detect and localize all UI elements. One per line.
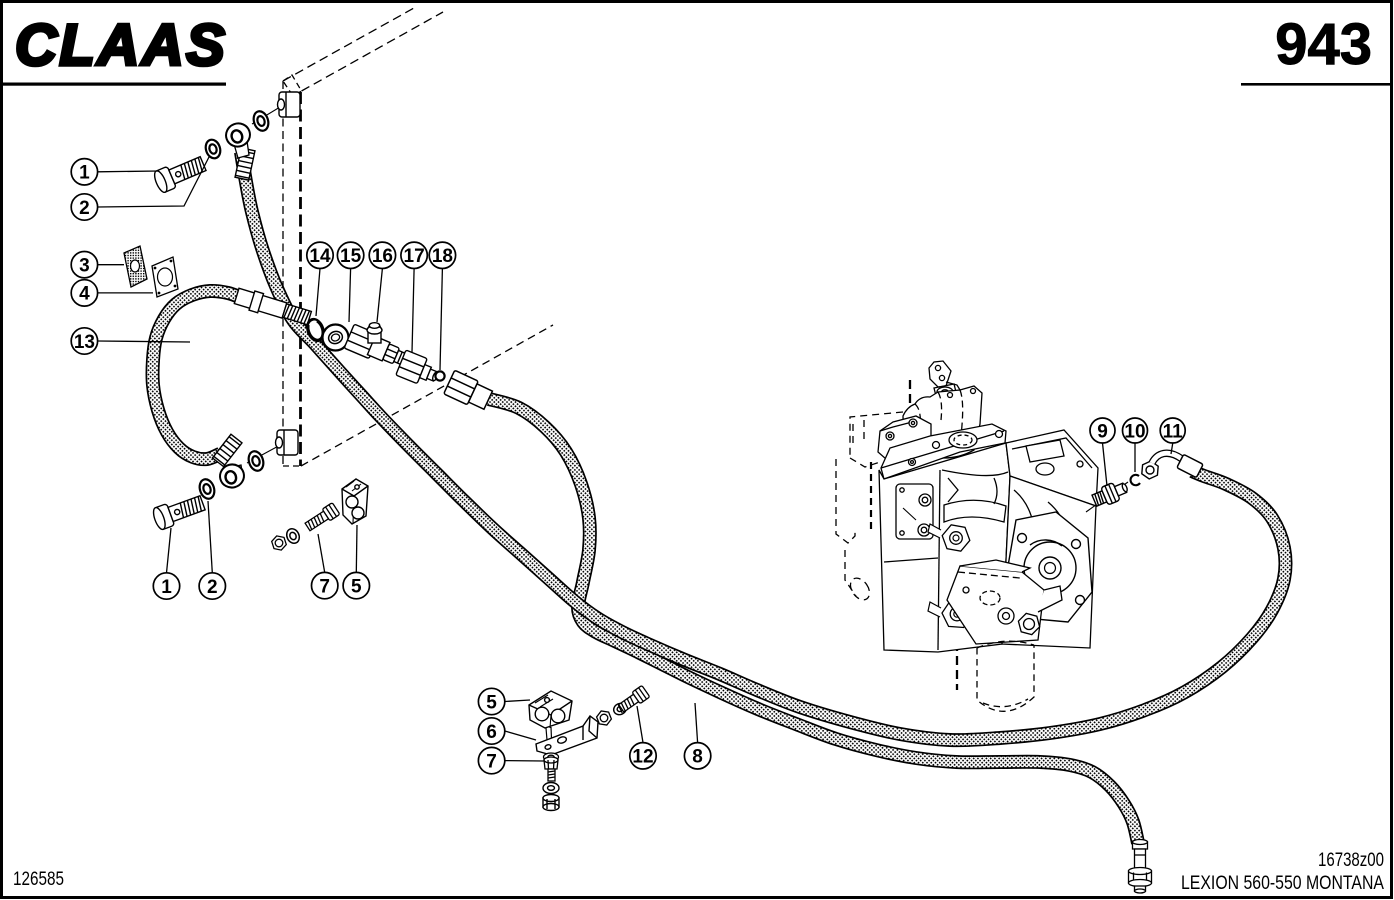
- svg-text:6: 6: [486, 722, 497, 743]
- svg-text:12: 12: [632, 747, 653, 768]
- svg-text:4: 4: [79, 284, 90, 305]
- svg-text:943: 943: [1275, 12, 1372, 77]
- svg-text:1: 1: [161, 577, 172, 598]
- svg-text:5: 5: [486, 692, 497, 713]
- svg-text:9: 9: [1097, 421, 1108, 442]
- svg-text:16738z00: 16738z00: [1318, 850, 1384, 871]
- svg-text:17: 17: [404, 246, 425, 267]
- svg-text:126585: 126585: [13, 868, 64, 890]
- svg-text:18: 18: [432, 246, 453, 267]
- svg-text:CLAAS: CLAAS: [15, 13, 227, 78]
- svg-text:11: 11: [1163, 421, 1184, 442]
- svg-text:13: 13: [74, 332, 95, 353]
- svg-text:16: 16: [372, 246, 393, 267]
- svg-text:15: 15: [340, 246, 362, 267]
- svg-text:7: 7: [486, 751, 497, 772]
- svg-text:7: 7: [319, 576, 330, 597]
- svg-text:LEXION 560-550 MONTANA: LEXION 560-550 MONTANA: [1181, 872, 1384, 894]
- svg-text:8: 8: [692, 747, 703, 768]
- svg-text:1: 1: [79, 163, 90, 184]
- svg-text:10: 10: [1124, 421, 1145, 442]
- svg-text:3: 3: [79, 256, 90, 277]
- svg-text:14: 14: [309, 246, 331, 267]
- svg-text:2: 2: [207, 577, 218, 598]
- svg-text:2: 2: [79, 198, 90, 219]
- svg-text:5: 5: [351, 576, 362, 597]
